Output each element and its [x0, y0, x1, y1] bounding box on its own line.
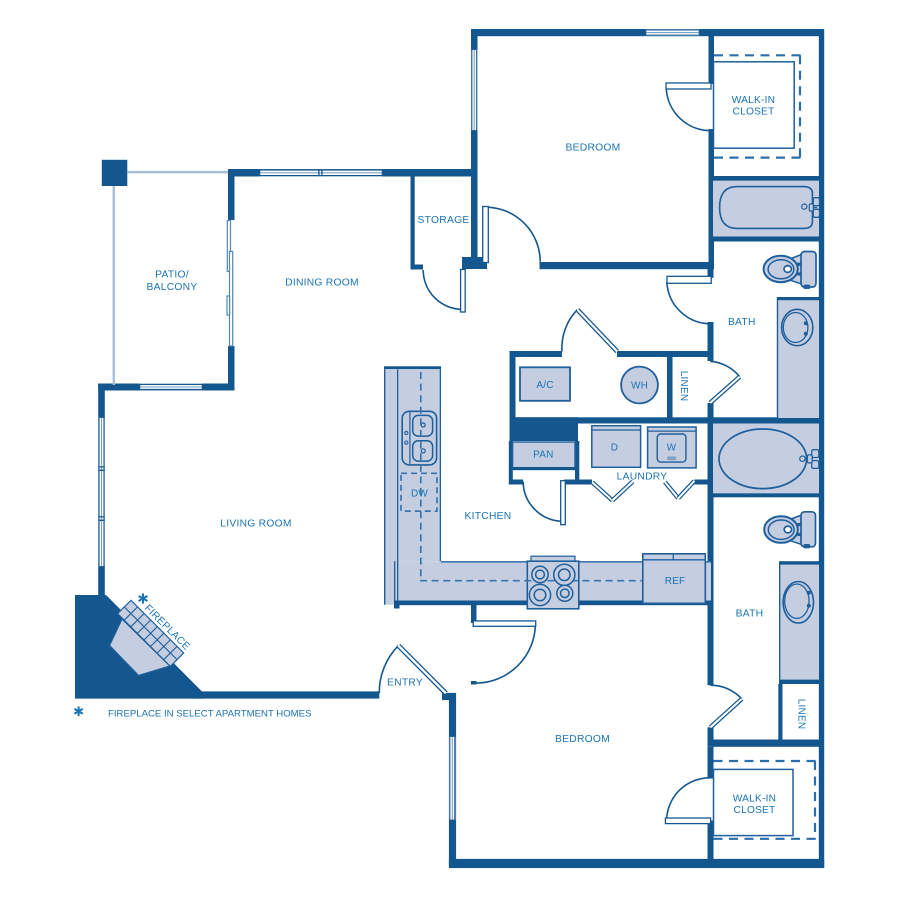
svg-text:LINEN: LINEN [678, 371, 689, 401]
svg-text:BEDROOM: BEDROOM [566, 143, 621, 154]
svg-text:CLOSET: CLOSET [733, 107, 775, 118]
svg-text:LINEN: LINEN [796, 699, 807, 729]
svg-text:PAN: PAN [533, 450, 553, 461]
svg-text:KITCHEN: KITCHEN [465, 511, 512, 522]
svg-text:ENTRY: ENTRY [387, 677, 423, 688]
svg-text:WH: WH [631, 381, 648, 392]
svg-text:STORAGE: STORAGE [418, 215, 470, 226]
svg-text:PATIO/: PATIO/ [155, 270, 189, 281]
svg-text:WALK-IN: WALK-IN [732, 95, 775, 106]
svg-text:BEDROOM: BEDROOM [555, 734, 610, 745]
svg-text:W: W [667, 443, 677, 454]
svg-text:D: D [611, 443, 618, 454]
svg-text:DW: DW [411, 489, 428, 500]
svg-text:BATH: BATH [728, 317, 756, 328]
svg-text:LAUNDRY: LAUNDRY [617, 471, 668, 482]
svg-text:CLOSET: CLOSET [734, 805, 776, 816]
svg-text:REF: REF [665, 576, 686, 587]
svg-text:BALCONY: BALCONY [147, 282, 198, 293]
svg-text:WALK-IN: WALK-IN [733, 794, 776, 805]
svg-text:FIREPLACE IN SELECT APARTMENT: FIREPLACE IN SELECT APARTMENT HOMES [108, 709, 311, 720]
svg-text:BATH: BATH [736, 609, 764, 620]
svg-text:A/C: A/C [536, 380, 553, 391]
svg-text:LIVING ROOM: LIVING ROOM [220, 519, 291, 530]
svg-text:DINING ROOM: DINING ROOM [285, 278, 359, 289]
